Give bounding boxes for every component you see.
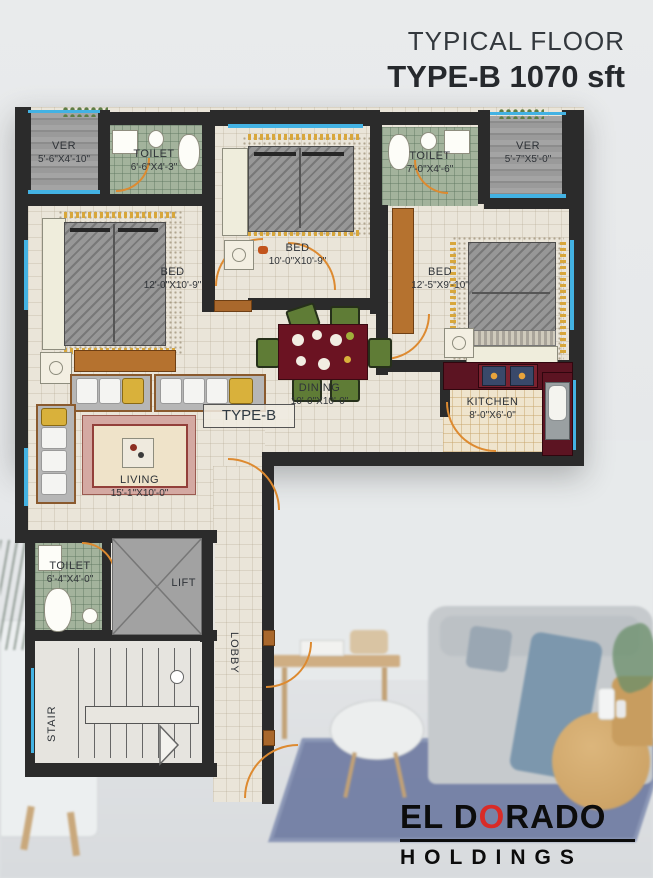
sofa-cushion-yellow <box>122 378 144 404</box>
room-name: BED <box>115 266 230 280</box>
stove-burner <box>510 366 534 386</box>
room-name: VER <box>488 140 568 154</box>
bed-middle-mattress <box>248 146 354 232</box>
room-label-toilet-top-left: TOILET 6'-6"X4'-3" <box>104 148 204 174</box>
room-label-lift: LIFT <box>132 577 196 591</box>
bed-left-side-table <box>40 352 72 384</box>
bed-left-headboard <box>42 218 66 350</box>
sofa-cushion <box>41 473 67 495</box>
sofa-cushion <box>183 378 205 404</box>
room-label-bed-middle: BED 10'-0"X10'-9" <box>240 242 355 268</box>
room-dims: 6'-4"X4'-0" <box>32 574 108 587</box>
bed-divider-line <box>472 292 550 294</box>
brand-logo-wordmark: EL DORADO <box>400 798 635 836</box>
sofa-cushion <box>41 427 67 449</box>
door-leaf <box>263 630 275 646</box>
stair-direction-arrow <box>158 724 182 766</box>
photo-plant-stems <box>0 540 26 650</box>
room-name: TOILET <box>32 560 108 574</box>
toilet-shower <box>148 130 164 148</box>
table-decor <box>346 332 354 340</box>
wall-segment <box>106 112 216 125</box>
table-decor <box>344 356 351 363</box>
room-dims: 12'-5"X9'-10" <box>385 280 495 293</box>
title-line2: TYPE-B 1070 sft <box>387 59 625 95</box>
plate <box>330 334 342 346</box>
room-name: TOILET <box>380 150 480 164</box>
window-strip <box>24 240 28 310</box>
toilet-shower <box>420 132 437 150</box>
plate <box>318 358 330 370</box>
logo-divider-line <box>400 839 635 842</box>
sofa-cushion-yellow <box>229 378 253 404</box>
door-leaf <box>263 730 275 746</box>
door-leaf <box>214 300 252 312</box>
photo-basket <box>350 630 388 654</box>
window-strip <box>490 194 566 198</box>
room-name: TOILET <box>104 148 204 162</box>
sofa-cushion <box>99 378 121 404</box>
window-strip <box>31 668 34 753</box>
room-label-toilet-bottom: TOILET 6'-4"X4'-0" <box>32 560 108 586</box>
floorplan-page: TYPICAL FLOOR TYPE-B 1070 sft <box>0 0 653 878</box>
brand-logo: EL DORADO HOLDINGS <box>400 798 635 870</box>
window-strip <box>24 448 28 506</box>
bed-middle-fringe <box>248 134 360 140</box>
plate <box>312 330 322 340</box>
room-dims: 15'-1"X10'-0" <box>82 488 197 501</box>
room-name: KITCHEN <box>435 396 550 410</box>
window-strip <box>570 240 574 330</box>
photo-vase <box>616 700 626 718</box>
room-name: BED <box>240 242 355 256</box>
photo-pillow <box>465 625 512 672</box>
logo-text-post: RADO <box>505 798 606 835</box>
window-strip <box>28 190 100 194</box>
sofa-cushion <box>206 378 228 404</box>
room-label-kitchen: KITCHEN 8'-0"X6'-0" <box>435 396 550 422</box>
brand-logo-subtitle: HOLDINGS <box>400 846 635 870</box>
table-decor <box>138 452 144 458</box>
plate <box>296 356 306 366</box>
room-label-living: LIVING 15'-1"X10'-0" <box>82 474 197 500</box>
dining-table <box>278 324 368 380</box>
title-line1: TYPICAL FLOOR <box>387 26 625 57</box>
title-block: TYPICAL FLOOR TYPE-B 1070 sft <box>387 26 625 95</box>
room-dims: 12'-0"X10'-9" <box>115 280 230 293</box>
wall-segment <box>22 194 212 206</box>
room-label-lobby: LOBBY <box>228 632 240 712</box>
room-label-ver-right: VER 5'-7"X5'-0" <box>488 140 568 166</box>
stair-newel-dot <box>170 670 184 684</box>
bed-right-blanket-edge <box>468 330 556 346</box>
room-name: VER <box>24 140 104 154</box>
room-name: LIVING <box>82 474 197 488</box>
kitchen-sink-basin <box>548 385 567 421</box>
sofa-cushion-yellow <box>41 408 67 426</box>
wall-segment <box>202 638 214 770</box>
dining-chair <box>368 338 392 368</box>
toilet-drain <box>82 608 98 624</box>
bed-right-side-table <box>444 328 474 358</box>
bed-right-fringe <box>560 242 566 354</box>
window-strip <box>490 112 566 115</box>
photo-coffee-table <box>330 700 424 760</box>
wall-segment <box>262 452 584 466</box>
sofa-cushion <box>76 378 98 404</box>
room-label-bed-left: BED 12'-0"X10'-9" <box>115 266 230 292</box>
bed-pillow <box>118 228 158 232</box>
window-strip <box>28 110 100 113</box>
sofa-cushion <box>41 450 67 472</box>
room-label-stair: STAIR <box>46 662 58 742</box>
unit-tag-badge: TYPE-B <box>203 404 295 428</box>
stove-burner <box>482 366 506 386</box>
room-name: BED <box>385 266 495 280</box>
bed-left-fringe <box>64 212 176 218</box>
sofa-cushion <box>160 378 182 404</box>
bed-pillow <box>254 152 296 156</box>
bed-pillow <box>302 152 344 156</box>
room-dims: 5'-6"X4'-10" <box>24 154 104 167</box>
room-dims: 5'-7"X5'-0" <box>488 154 568 167</box>
wall-segment <box>25 763 217 777</box>
room-label-ver-left: VER 5'-6"X4'-10" <box>24 140 104 166</box>
window-strip <box>228 124 363 128</box>
bed-left-wardrobe <box>74 350 176 372</box>
room-label-toilet-top-right: TOILET 7'-0"X4'-6" <box>380 150 480 176</box>
bed-pillow <box>70 228 110 232</box>
bed-divider-line <box>299 148 301 228</box>
room-label-bed-right: BED 12'-5"X9'-10" <box>385 266 495 292</box>
room-dims: 7'-0"X4'-6" <box>380 164 480 177</box>
logo-text-pre: EL D <box>400 798 479 835</box>
stair-landing <box>85 706 199 724</box>
room-name: LIFT <box>132 577 196 591</box>
toilet-wc <box>44 588 72 632</box>
wall-segment <box>376 112 484 125</box>
photo-candle-jar <box>598 688 615 720</box>
room-dims: 10'-0"X10'-9" <box>240 256 355 269</box>
logo-accent-letter: O <box>479 798 506 835</box>
room-dims: 6'-6"X4'-3" <box>104 162 204 175</box>
room-name: DINING <box>262 382 377 396</box>
dining-chair <box>256 338 280 368</box>
plate <box>292 334 304 346</box>
table-decor <box>130 444 137 451</box>
bed-middle-headboard <box>222 148 248 236</box>
room-dims: 8'-0"X6'-0" <box>435 410 550 423</box>
